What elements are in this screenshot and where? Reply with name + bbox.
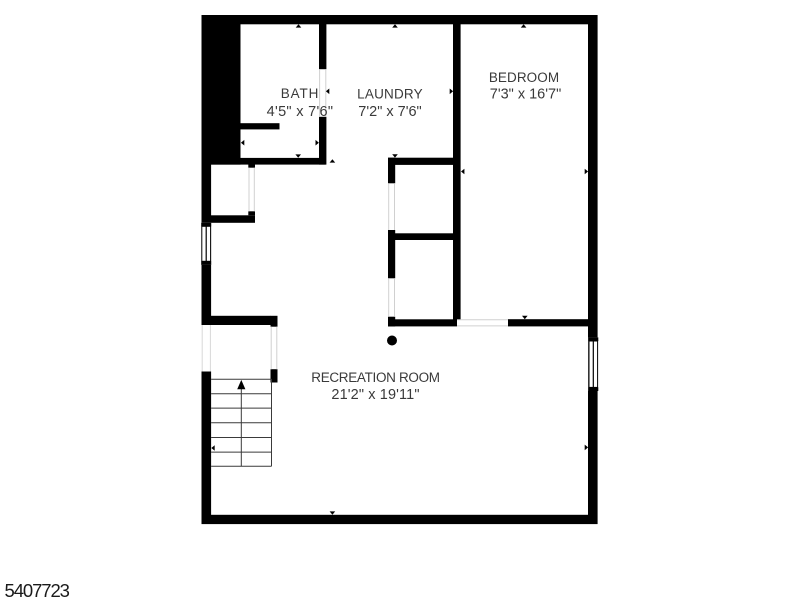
- svg-text:RECREATION ROOM: RECREATION ROOM: [311, 370, 440, 385]
- svg-text:BEDROOM: BEDROOM: [489, 70, 559, 85]
- svg-text:21'2" x 19'11": 21'2" x 19'11": [331, 387, 419, 403]
- svg-text:7'2" x 7'6": 7'2" x 7'6": [358, 104, 421, 120]
- svg-text:5407723: 5407723: [5, 580, 70, 600]
- svg-text:BATH: BATH: [281, 86, 319, 101]
- svg-text:4'5" x 7'6": 4'5" x 7'6": [267, 104, 334, 120]
- svg-text:7'3" x 16'7": 7'3" x 16'7": [490, 87, 561, 103]
- svg-text:LAUNDRY: LAUNDRY: [357, 87, 423, 102]
